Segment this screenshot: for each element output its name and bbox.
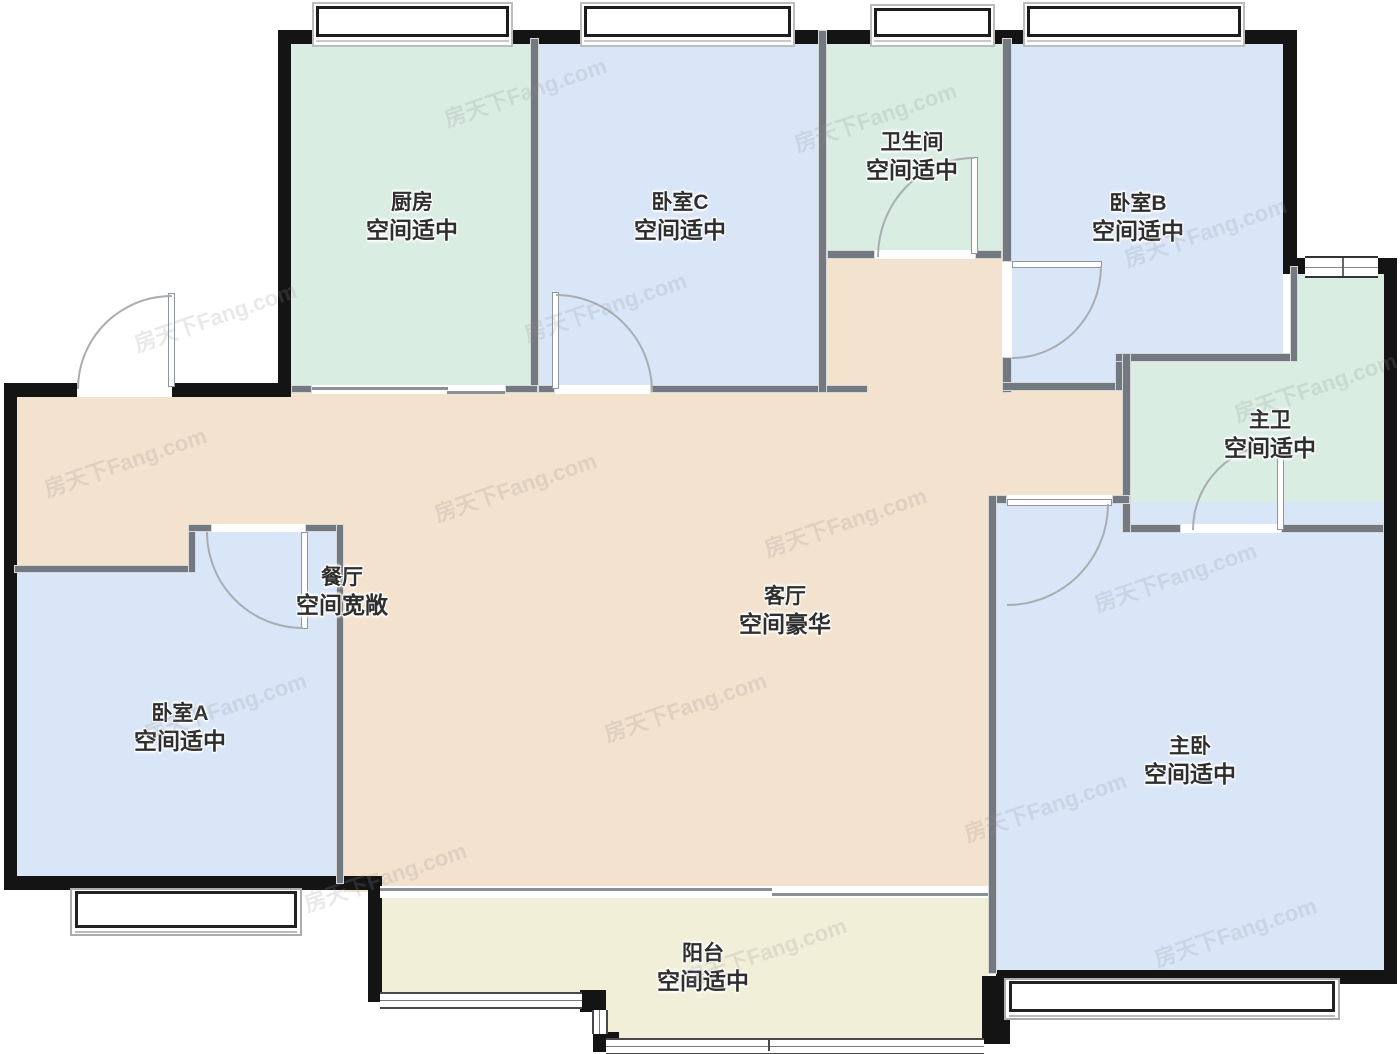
wall-bedroom-c-bathroom [818,30,827,393]
wall-bathroom-bottom [827,250,875,259]
room-note: 空间适中 [634,216,726,245]
wall-master-bed-left [988,495,997,974]
wall-bedroom-a-top [188,524,212,532]
wall-master-bed-top [1112,495,1130,504]
label-balcony: 阳台 空间适中 [657,940,749,996]
room-name: 卧室A [134,700,226,727]
label-master-bedroom: 主卧 空间适中 [1144,733,1236,789]
master-bath-window [1305,256,1378,278]
label-kitchen: 厨房 空间适中 [366,189,458,245]
bedroom-a-threshold [212,524,305,532]
balcony-railing-divider [768,1038,770,1051]
room-name: 卧室C [634,189,726,216]
entry-door-arc [77,295,172,389]
wall-bathroom-bedroom-b [1002,38,1012,262]
bedroom-a-bay-window [70,888,302,936]
living-floor [344,392,992,892]
bathroom-window [870,4,995,47]
room-name: 餐厅 [296,564,388,591]
wall-jog-post-right [1378,258,1397,274]
wall-kitchen-bottom [505,385,538,393]
room-name: 主卫 [1224,407,1316,434]
room-note: 空间适中 [134,727,226,756]
label-bedroom-a: 卧室A 空间适中 [134,700,226,756]
master-bed-bay-window [1004,978,1340,1020]
wall-kitchen-bottom [291,385,312,393]
bedroom-b-threshold [1002,262,1012,357]
balcony-floor [380,892,602,996]
label-bedroom-c: 卧室C 空间适中 [634,189,726,245]
room-note: 空间豪华 [739,610,831,639]
room-note: 空间宽敞 [296,591,388,620]
balcony-railing-left [380,992,582,1009]
room-name: 卧室B [1092,190,1184,217]
wall-master-bath-bottom [1281,524,1384,533]
wall-right [1384,258,1397,984]
room-name: 阳台 [657,940,749,967]
kitchen-sliding-door [312,387,448,390]
wall-master-bath-bottom [1130,524,1181,533]
room-note: 空间适中 [866,156,958,185]
room-name: 厨房 [366,189,458,216]
room-name: 客厅 [739,583,831,610]
kitchen-window [312,2,513,47]
wall-entry-right [172,383,291,397]
room-note: 空间适中 [1092,217,1184,246]
kitchen-sliding-door [447,391,505,394]
wall-bedroom-c-bottom [650,385,868,393]
wall-left [4,383,17,888]
wall-bathroom-bottom [975,250,1002,259]
room-note: 空间适中 [366,216,458,245]
balcony-sliding-door [380,888,772,891]
balcony-railing-bottom [606,1038,984,1054]
wall-kitchen-left [278,30,291,392]
room-note: 空间适中 [657,967,749,996]
wall-master-bath-upper-left [1290,266,1298,362]
balcony-railing-step [592,1010,608,1034]
label-dining: 餐厅 空间宽敞 [296,564,388,620]
wall-bedroom-b-bottom [1002,382,1123,391]
wall-master-bath-left [1122,353,1131,533]
label-bedroom-b: 卧室B 空间适中 [1092,190,1184,246]
hall-to-master-floor [992,388,1130,502]
bedroom-c-window [580,2,795,47]
wall-bedroom-b-right [1283,30,1297,270]
master-bath-floor [1297,272,1384,362]
wall-bedroom-a-top [14,565,194,573]
room-note: 空间适中 [1144,760,1236,789]
label-living: 客厅 空间豪华 [739,583,831,639]
room-name: 主卧 [1144,733,1236,760]
wall-kitchen-bedroom-c [530,38,539,392]
label-bathroom: 卫生间 空间适中 [866,129,958,185]
hall-to-bathroom-floor [827,258,1002,398]
label-master-bath: 主卫 空间适中 [1224,407,1316,463]
room-name: 卫生间 [866,129,958,156]
bedroom-b-window [1023,2,1245,47]
balcony-sliding-door [772,893,988,896]
wall-balcony-step-post [580,990,606,1012]
wall-master-bath-top [1115,353,1297,362]
room-note: 空间适中 [1224,434,1316,463]
floorplan: 厨房 空间适中 卧室C 空间适中 卫生间 空间适中 卧室B 空间适中 主卫 空间… [0,0,1400,1054]
